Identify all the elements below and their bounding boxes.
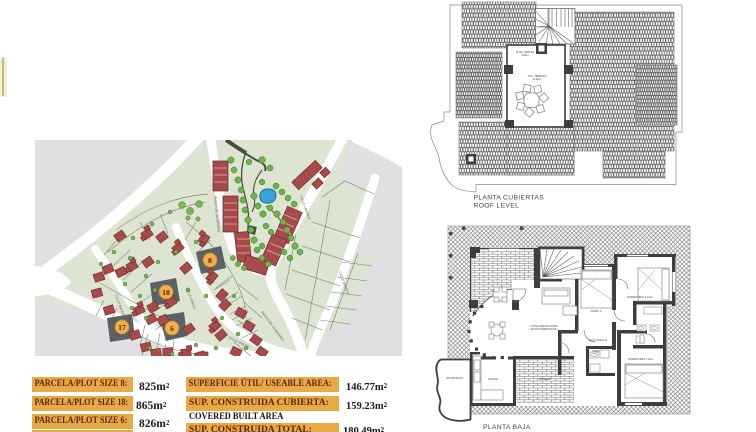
svg-text:DORMITORIO 3 11m²: DORMITORIO 3 11m²	[628, 357, 654, 361]
svg-text:8: 8	[208, 256, 212, 265]
svg-text:SALON COMEDOR 25m²: SALON COMEDOR 25m²	[530, 328, 558, 331]
svg-text:18: 18	[162, 288, 170, 297]
svg-text:DORM. 2: DORM. 2	[591, 309, 602, 313]
svg-text:41.06m²: 41.06m²	[533, 78, 542, 81]
svg-text:BANO: BANO	[593, 350, 600, 353]
svg-text:DORMITORIO 1 12m²: DORMITORIO 1 12m²	[627, 295, 653, 299]
svg-text:TERRAZA: TERRAZA	[539, 377, 551, 381]
svg-text:17: 17	[118, 323, 126, 332]
svg-text:PLANTA CUBIERTAS: PLANTA CUBIERTAS	[474, 195, 545, 202]
svg-text:SOLARIUM 9m²: SOLARIUM 9m²	[446, 377, 463, 380]
svg-text:ROOF LEVEL: ROOF LEVEL	[474, 202, 520, 209]
svg-text:9.56m²: 9.56m²	[521, 54, 529, 57]
svg-text:COCINA: COCINA	[488, 377, 498, 381]
svg-text:HALL PASILLO: HALL PASILLO	[589, 338, 607, 342]
svg-text:PLANTA BAJA: PLANTA BAJA	[483, 424, 531, 431]
svg-text:6: 6	[170, 324, 174, 333]
